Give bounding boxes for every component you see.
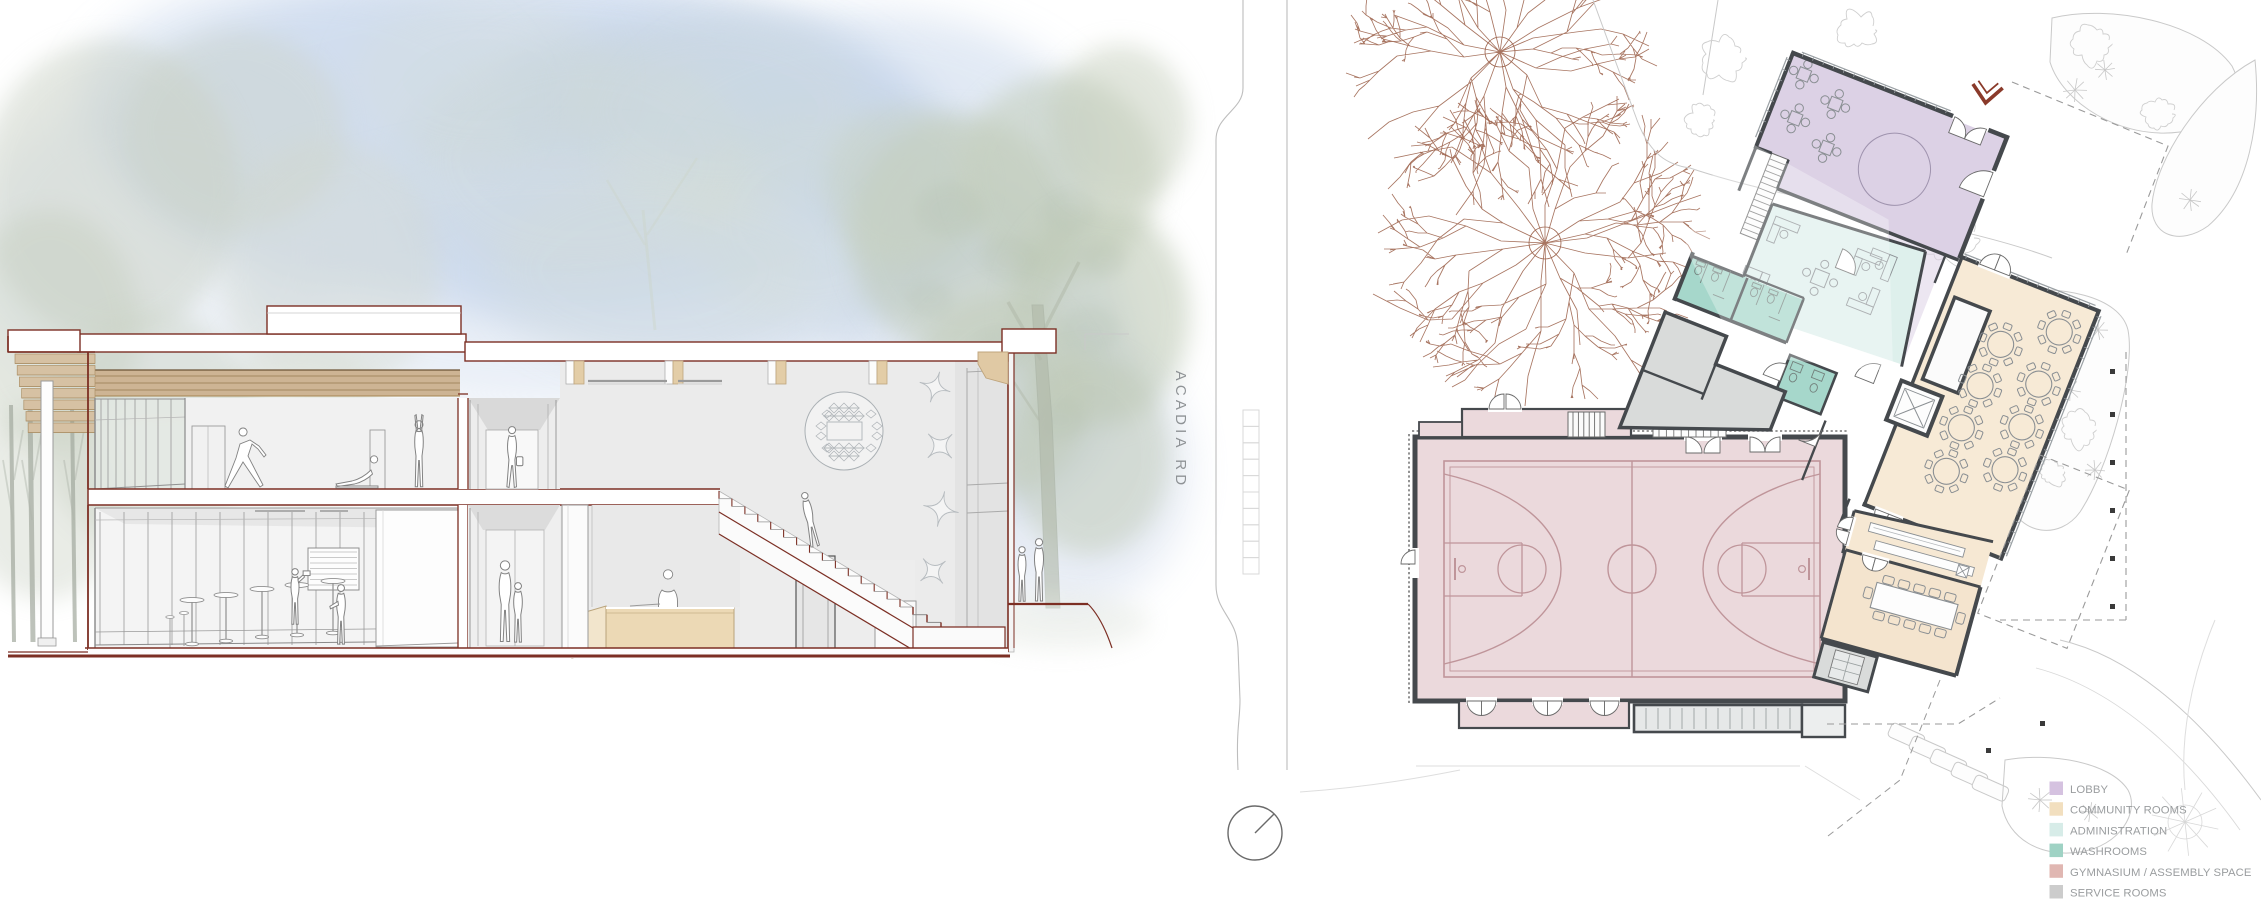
svg-text:ACADIA RD: ACADIA RD (1172, 371, 1189, 490)
svg-text:COMMUNITY ROOMS: COMMUNITY ROOMS (2070, 805, 2187, 817)
svg-text:WASHROOMS: WASHROOMS (2070, 846, 2147, 858)
svg-text:ADMINISTRATION: ADMINISTRATION (2070, 825, 2167, 837)
svg-text:GYMNASIUM / ASSEMBLY SPACE: GYMNASIUM / ASSEMBLY SPACE (2070, 867, 2252, 879)
svg-text:LOBBY: LOBBY (2070, 784, 2109, 796)
svg-text:SERVICE ROOMS: SERVICE ROOMS (2070, 888, 2167, 900)
